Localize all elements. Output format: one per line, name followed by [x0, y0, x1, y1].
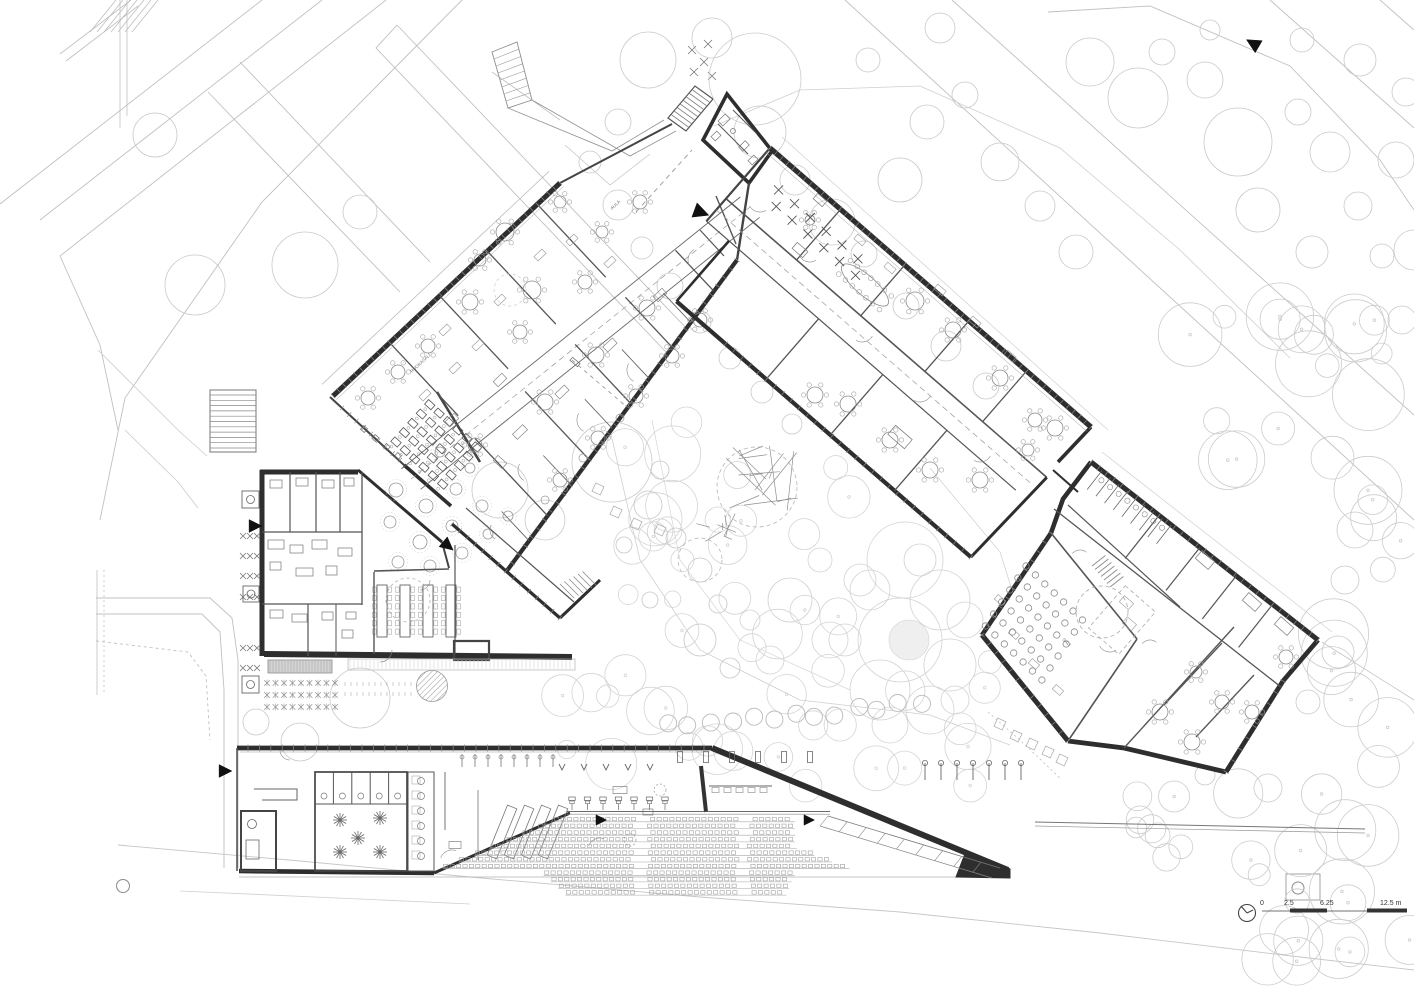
svg-text:6.25: 6.25	[1320, 900, 1334, 907]
svg-text:12.5 m: 12.5 m	[1380, 900, 1402, 907]
svg-text:0: 0	[1260, 900, 1264, 907]
svg-text:AULA: AULA	[609, 199, 621, 211]
svg-text:2.5: 2.5	[1284, 900, 1294, 907]
svg-text:SALI: SALI	[1061, 637, 1072, 647]
